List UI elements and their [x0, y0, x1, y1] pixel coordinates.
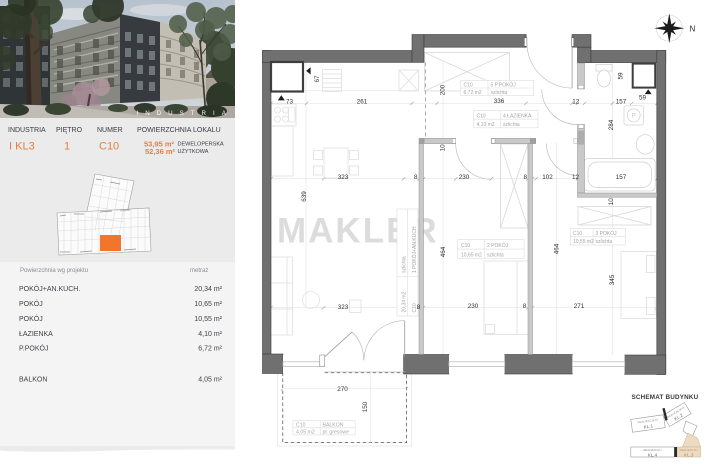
- svg-text:52,36 m²: 52,36 m²: [145, 147, 176, 156]
- svg-text:KL.4: KL.4: [648, 453, 658, 458]
- svg-text:P: P: [632, 113, 636, 120]
- svg-text:POKÓJ: POKÓJ: [19, 299, 43, 308]
- svg-text:C10: C10: [296, 422, 306, 428]
- svg-text:8: 8: [524, 174, 528, 181]
- svg-text:102: 102: [542, 174, 553, 181]
- svg-text:323: 323: [338, 304, 349, 311]
- svg-text:6,72 m²: 6,72 m²: [198, 346, 222, 353]
- svg-text:POWIERZCHNIA LOKALU: POWIERZCHNIA LOKALU: [137, 127, 221, 134]
- svg-text:8: 8: [414, 174, 418, 181]
- svg-text:P.POKÓJ: P.POKÓJ: [19, 344, 48, 353]
- svg-text:5 P.POKÓJ: 5 P.POKÓJ: [491, 81, 517, 88]
- svg-text:200: 200: [439, 84, 446, 95]
- svg-text:230: 230: [468, 303, 479, 310]
- svg-text:6,72 m2: 6,72 m2: [464, 90, 482, 96]
- svg-text:POKÓJ: POKÓJ: [19, 314, 43, 323]
- svg-text:59: 59: [639, 94, 647, 101]
- svg-text:4,10 m²: 4,10 m²: [198, 331, 222, 338]
- svg-text:157: 157: [616, 174, 627, 181]
- svg-text:I KL3: I KL3: [9, 141, 35, 153]
- svg-text:464: 464: [440, 246, 447, 257]
- svg-text:10: 10: [440, 144, 447, 152]
- svg-text:12: 12: [572, 174, 580, 181]
- svg-text:1: 1: [64, 141, 70, 153]
- svg-text:20,34 m2: 20,34 m2: [401, 291, 407, 312]
- svg-text:C10: C10: [461, 243, 470, 249]
- svg-text:8: 8: [417, 304, 421, 311]
- svg-text:4,05 m²: 4,05 m²: [198, 377, 222, 384]
- svg-text:1 POKÓJ+AN.KUCH: 1 POKÓJ+AN.KUCH: [411, 226, 418, 273]
- svg-text:INDUSTRIA: INDUSTRIA: [8, 127, 46, 134]
- svg-text:3 POKÓJ: 3 POKÓJ: [596, 230, 618, 237]
- svg-text:10,55 m2: 10,55 m2: [573, 239, 594, 245]
- svg-text:szlichta: szlichta: [401, 256, 407, 273]
- svg-text:C10: C10: [477, 113, 486, 119]
- svg-text:464: 464: [553, 243, 560, 254]
- svg-text:20,34 m²: 20,34 m²: [194, 286, 222, 293]
- svg-text:336: 336: [494, 98, 505, 105]
- svg-text:67: 67: [314, 75, 321, 83]
- svg-text:4,10 m2: 4,10 m2: [477, 122, 495, 128]
- svg-text:4 ŁAZIENKA: 4 ŁAZIENKA: [503, 113, 532, 119]
- svg-text:284: 284: [608, 119, 615, 130]
- svg-text:230: 230: [459, 174, 470, 181]
- svg-text:szlichta: szlichta: [487, 252, 504, 258]
- svg-text:DEWELOPERSKA: DEWELOPERSKA: [178, 142, 224, 148]
- svg-text:szlichta: szlichta: [503, 122, 520, 128]
- svg-text:639: 639: [301, 191, 308, 202]
- svg-text:261: 261: [357, 99, 368, 106]
- svg-text:10,65 m2: 10,65 m2: [461, 252, 482, 258]
- svg-text:C10: C10: [573, 231, 582, 237]
- svg-text:REALIZACJA I: REALIZACJA I: [680, 448, 699, 452]
- svg-text:UŻYTKOWA: UŻYTKOWA: [178, 148, 209, 155]
- svg-text:POKÓJ+AN.KUCH.: POKÓJ+AN.KUCH.: [19, 284, 80, 293]
- svg-text:10,65 m²: 10,65 m²: [194, 301, 222, 308]
- svg-text:metraż: metraż: [190, 268, 208, 274]
- svg-text:12: 12: [572, 98, 580, 105]
- svg-text:C10: C10: [99, 141, 119, 153]
- svg-text:157: 157: [616, 98, 627, 105]
- svg-text:N: N: [690, 25, 696, 34]
- svg-text:8: 8: [523, 303, 527, 310]
- svg-text:szlichta: szlichta: [596, 239, 613, 245]
- svg-text:INDUSTRIA: INDUSTRIA: [137, 110, 233, 117]
- svg-text:PIĘTRO: PIĘTRO: [56, 127, 83, 134]
- svg-text:323: 323: [338, 174, 349, 181]
- svg-text:Powierzchnia wg projektu: Powierzchnia wg projektu: [20, 268, 88, 274]
- svg-text:pł. gresowe: pł. gresowe: [323, 429, 350, 435]
- svg-text:C10: C10: [464, 82, 473, 88]
- svg-text:BALKON: BALKON: [19, 377, 47, 384]
- svg-text:59: 59: [617, 72, 624, 80]
- svg-text:10: 10: [608, 198, 615, 206]
- svg-text:345: 345: [609, 274, 616, 285]
- svg-text:2 POKÓJ: 2 POKÓJ: [487, 242, 509, 249]
- svg-text:73: 73: [286, 99, 294, 106]
- svg-text:SCHEMAT BUDYNKU: SCHEMAT BUDYNKU: [632, 394, 699, 401]
- svg-text:NUMER: NUMER: [97, 127, 123, 134]
- svg-text:szlichta: szlichta: [491, 90, 508, 96]
- svg-text:150: 150: [362, 401, 369, 412]
- svg-text:271: 271: [574, 303, 585, 310]
- svg-text:4,05 m2: 4,05 m2: [296, 429, 315, 435]
- svg-text:KL.3: KL.3: [684, 453, 694, 458]
- svg-text:10,55 m²: 10,55 m²: [194, 316, 222, 323]
- svg-text:BALKON: BALKON: [323, 422, 344, 428]
- svg-text:ŁAZIENKA: ŁAZIENKA: [19, 331, 53, 338]
- svg-text:REALIZACJA I: REALIZACJA I: [643, 448, 662, 452]
- svg-text:270: 270: [337, 386, 348, 393]
